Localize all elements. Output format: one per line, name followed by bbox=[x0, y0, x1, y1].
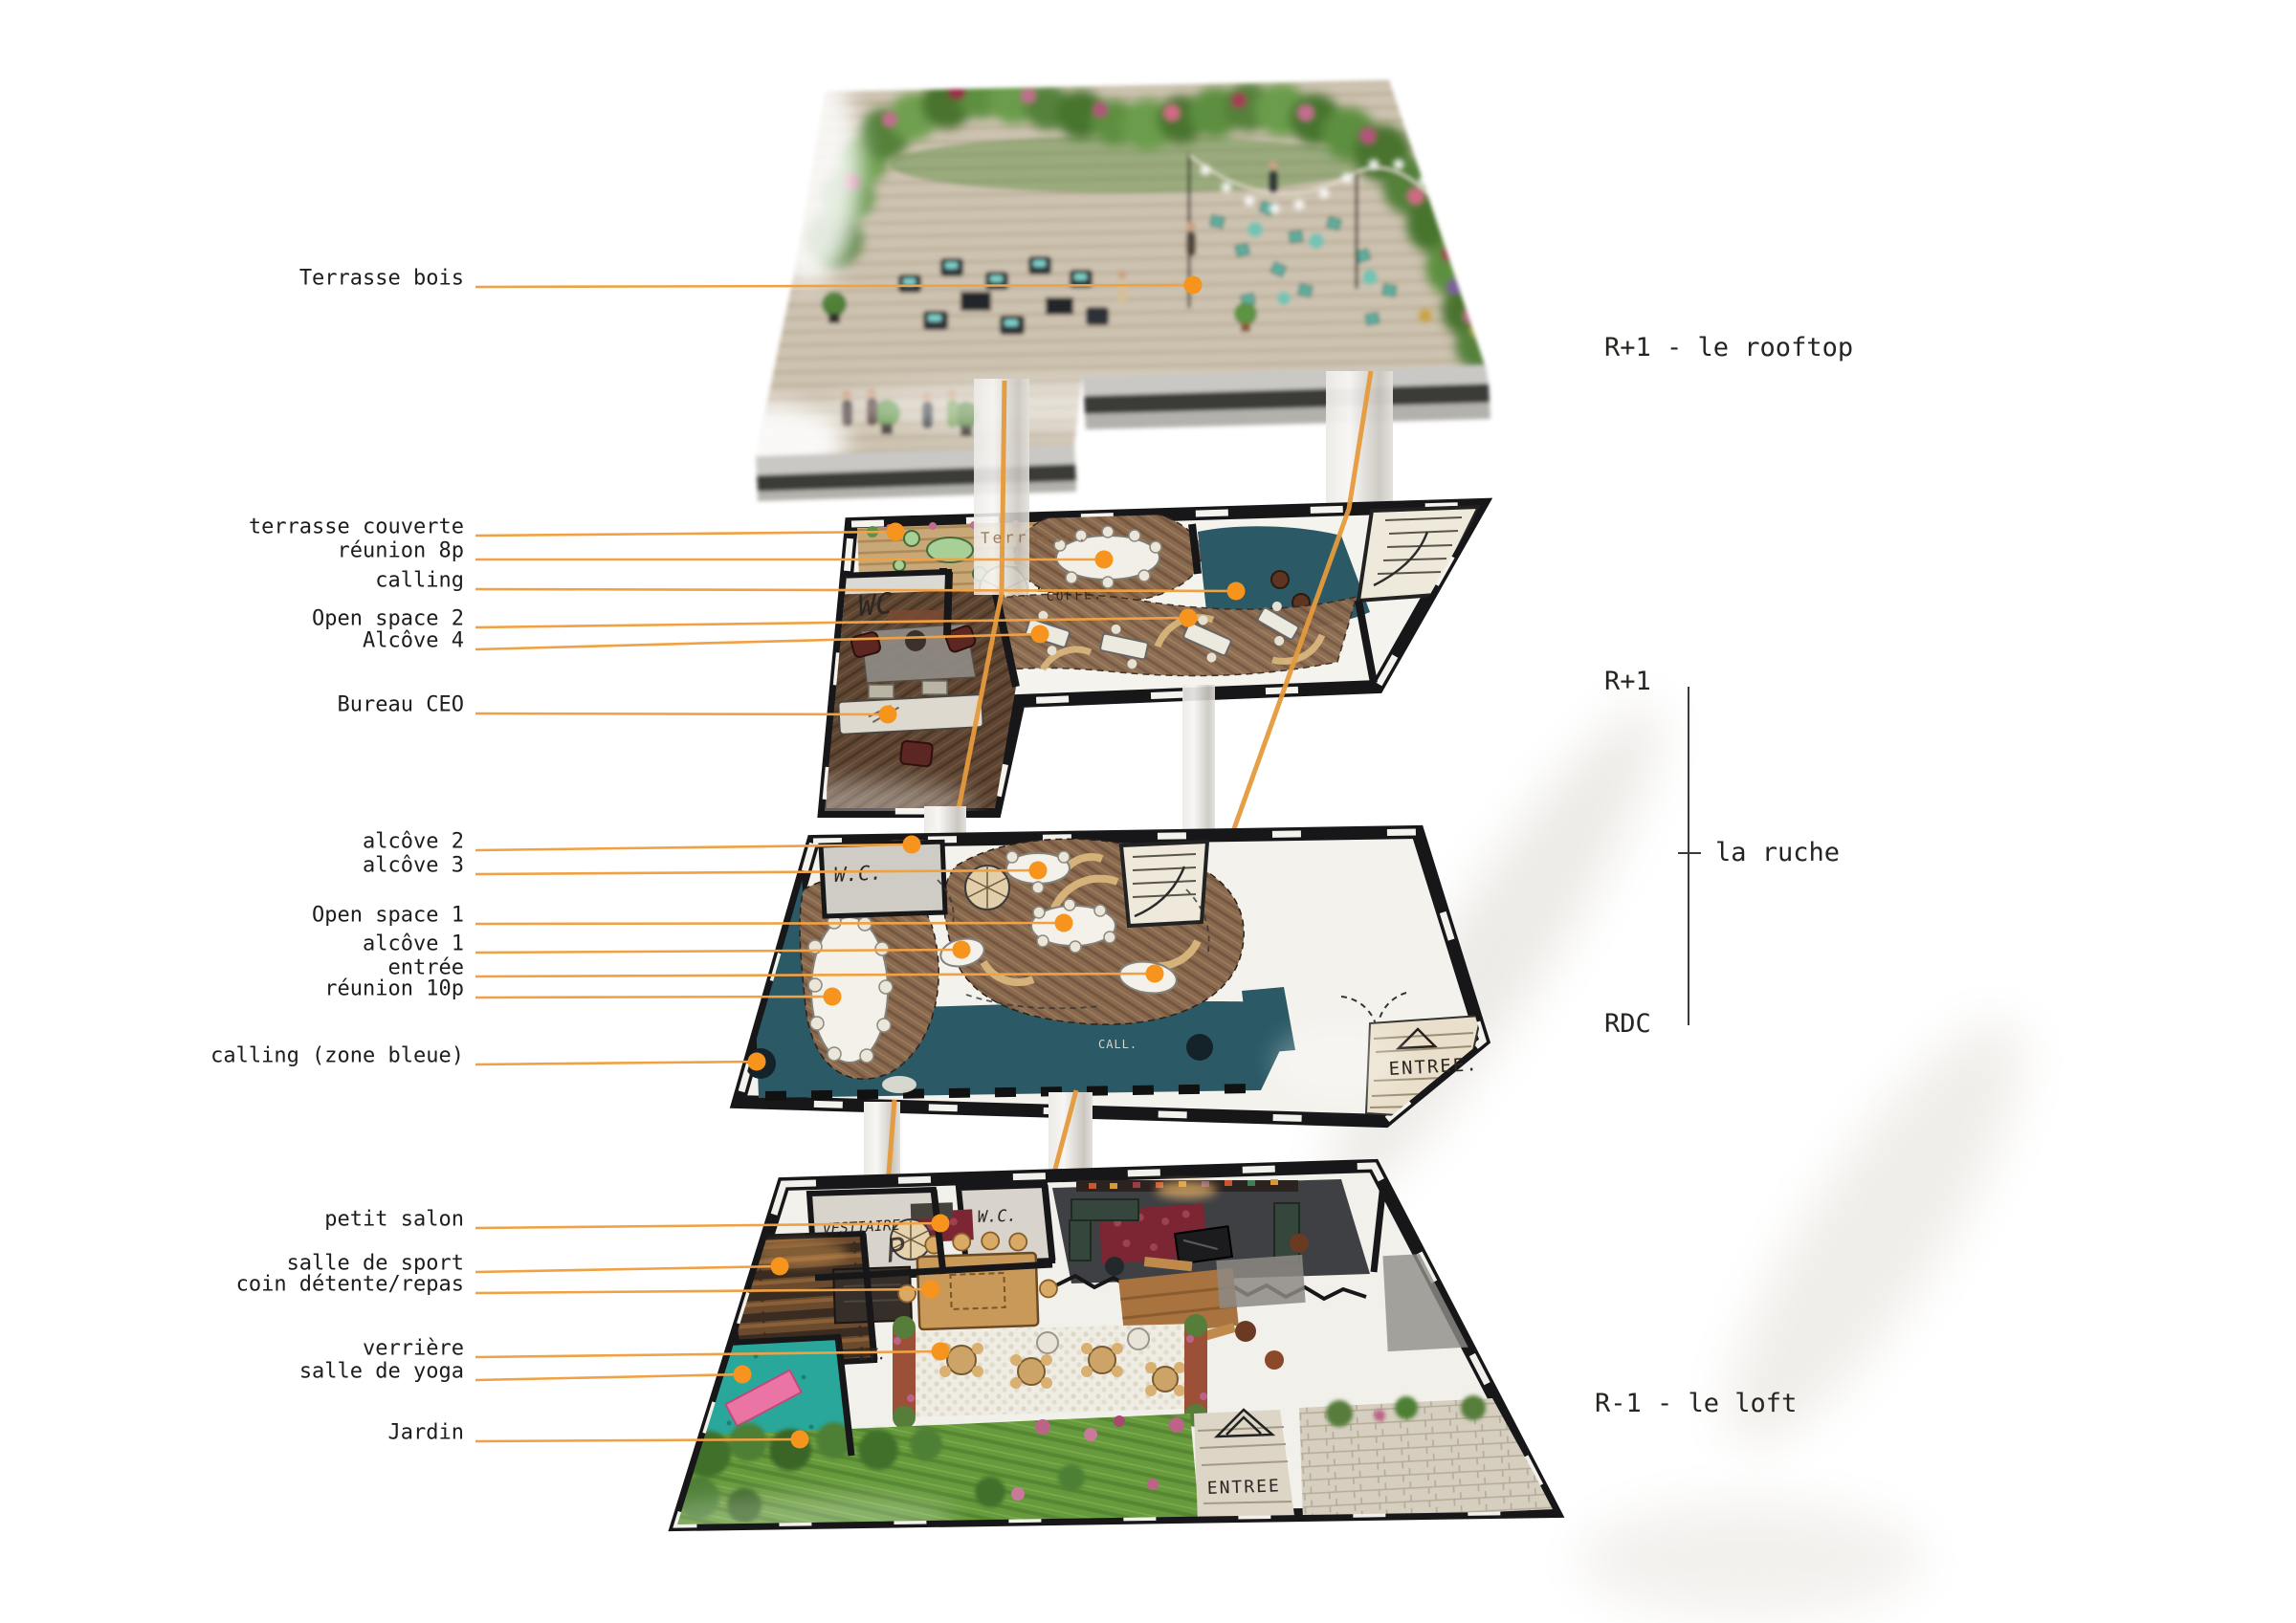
plan-text-wc-rm1: W.C. bbox=[977, 1207, 1017, 1227]
marker-dot-terrasse-bois bbox=[1184, 276, 1203, 295]
plan-text-wc-rdc: W.C. bbox=[833, 861, 883, 887]
leader-line-open-space-1 bbox=[475, 923, 1064, 924]
marker-dot-calling bbox=[1227, 582, 1246, 601]
level-label-r1: R+1 bbox=[1604, 667, 1651, 696]
room-label-alcove-3: alcôve 3 bbox=[363, 854, 464, 878]
diagram-svg: Terrasse. WC COFFE. W.C. CALL. ENTREE. V… bbox=[0, 0, 2296, 1623]
plan-text-wc-r1: WC bbox=[857, 587, 894, 624]
level-label-rooftop: R+1 - le rooftop bbox=[1604, 333, 1853, 362]
marker-dot-jardin bbox=[791, 1431, 809, 1449]
marker-dot-bureau-ceo bbox=[879, 706, 897, 724]
r-minus-1-floor-plan bbox=[651, 1166, 1554, 1537]
room-label-reunion-10p: réunion 10p bbox=[324, 977, 464, 1001]
marker-dot-salle-de-yoga bbox=[734, 1366, 752, 1384]
room-label-reunion-8p: réunion 8p bbox=[338, 539, 464, 563]
marker-dot-coin-detente-repas bbox=[922, 1281, 940, 1299]
plan-text-terrasse: Terrasse. bbox=[981, 527, 1090, 547]
marker-dot-alcove-1 bbox=[953, 941, 971, 959]
leader-line-reunion-10p bbox=[475, 997, 832, 998]
leader-line-salle-de-sport bbox=[475, 1266, 780, 1272]
room-label-open-space-2: Open space 2 bbox=[312, 607, 464, 631]
marker-dot-alcove-4 bbox=[1031, 625, 1049, 644]
level-label-rdc: RDC bbox=[1604, 1009, 1651, 1039]
room-label-salle-de-yoga: salle de yoga bbox=[299, 1360, 464, 1384]
leader-line-terrasse-couverte bbox=[475, 532, 895, 536]
room-label-bureau-ceo: Bureau CEO bbox=[338, 693, 464, 717]
architecture-exploded-diagram: Terrasse. WC COFFE. W.C. CALL. ENTREE. V… bbox=[0, 0, 2296, 1623]
room-label-calling-zone-bleue: calling (zone bleue) bbox=[210, 1044, 464, 1068]
plan-text-entree-rm1: ENTREE bbox=[1206, 1476, 1281, 1499]
marker-dot-open-space-2 bbox=[1180, 609, 1198, 627]
room-label-terrasse-couverte: terrasse couverte bbox=[249, 515, 464, 539]
room-label-alcove-1: alcôve 1 bbox=[363, 932, 464, 956]
room-label-coin-detente-repas: coin détente/repas bbox=[236, 1273, 464, 1297]
marker-dot-entree bbox=[1146, 965, 1164, 983]
room-label-terrasse-bois: Terrasse bois bbox=[299, 267, 464, 291]
pillar-gap2-right bbox=[1182, 685, 1215, 840]
marker-dot-petit-salon bbox=[932, 1215, 950, 1233]
room-label-open-space-1: Open space 1 bbox=[312, 904, 464, 928]
room-label-calling: calling bbox=[375, 569, 464, 593]
leader-line-salle-de-yoga bbox=[475, 1374, 742, 1380]
r-plus-1-floor-plan bbox=[746, 505, 1481, 826]
marker-dot-alcove-2 bbox=[903, 836, 921, 854]
leader-line-bureau-ceo bbox=[475, 713, 888, 714]
room-label-petit-salon: petit salon bbox=[324, 1208, 464, 1232]
plan-text-lt: LT. bbox=[858, 1345, 887, 1364]
marker-dot-salle-de-sport bbox=[771, 1258, 789, 1276]
marker-dot-alcove-3 bbox=[1029, 862, 1048, 880]
room-label-jardin: Jardin bbox=[388, 1421, 464, 1445]
building-name-label: la ruche bbox=[1715, 838, 1840, 867]
room-label-alcove-4: Alcôve 4 bbox=[363, 629, 464, 653]
marker-dot-terrasse-couverte bbox=[887, 523, 905, 541]
marker-dot-reunion-10p bbox=[824, 988, 842, 1006]
room-label-alcove-2: alcôve 2 bbox=[363, 830, 464, 854]
level-label-loft: R-1 - le loft bbox=[1595, 1389, 1797, 1418]
marker-dot-open-space-1 bbox=[1055, 914, 1073, 932]
leader-line-calling-zone-bleue bbox=[475, 1062, 757, 1064]
plan-text-call: CALL. bbox=[1098, 1038, 1137, 1051]
marker-dot-verriere bbox=[932, 1343, 950, 1361]
room-label-verriere: verrière bbox=[363, 1337, 464, 1361]
marker-dot-calling-zone-bleue bbox=[748, 1053, 766, 1071]
marker-dot-reunion-8p bbox=[1095, 551, 1114, 569]
